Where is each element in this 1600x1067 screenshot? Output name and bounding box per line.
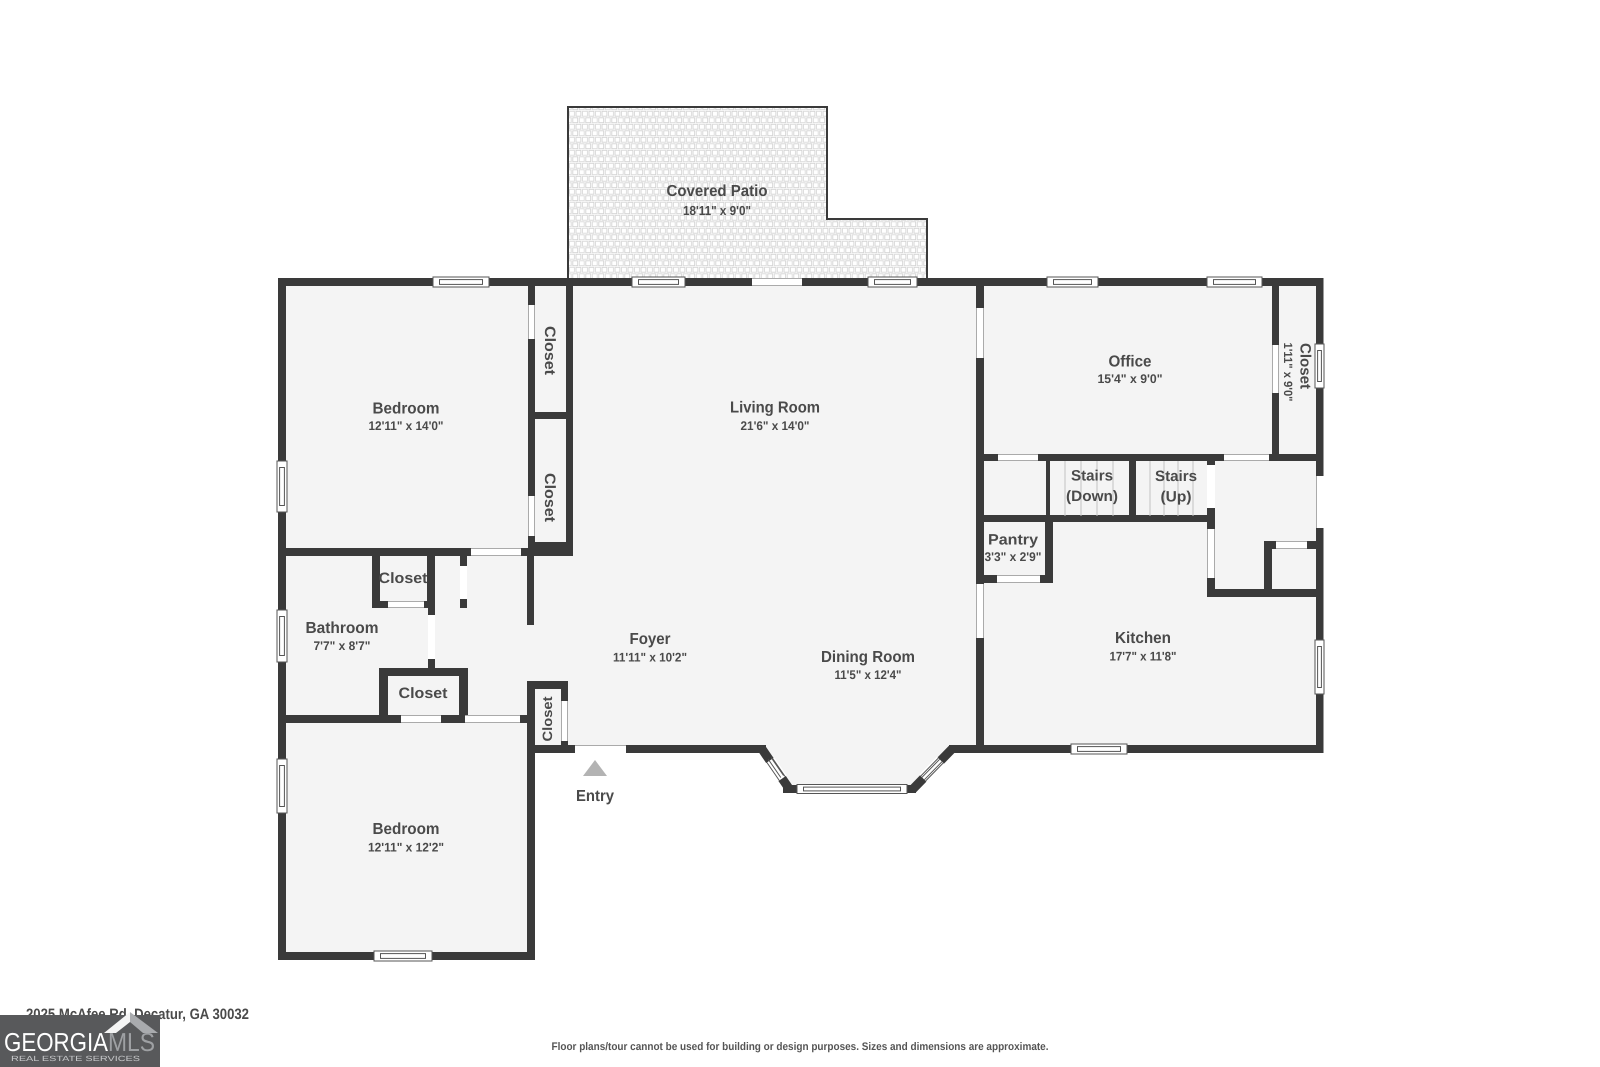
svg-text:Foyer: Foyer	[630, 631, 671, 648]
svg-text:(Down): (Down)	[1066, 488, 1118, 505]
svg-text:3'3" x 2'9": 3'3" x 2'9"	[985, 550, 1042, 564]
svg-text:15'4" x 9'0": 15'4" x 9'0"	[1098, 372, 1163, 386]
svg-text:Covered Patio: Covered Patio	[667, 183, 768, 200]
svg-text:11'5" x 12'4": 11'5" x 12'4"	[835, 668, 902, 682]
svg-text:Pantry: Pantry	[988, 532, 1039, 549]
svg-text:Closet: Closet	[541, 326, 558, 375]
svg-text:Entry: Entry	[576, 788, 614, 805]
svg-text:12'11" x 14'0": 12'11" x 14'0"	[369, 419, 444, 433]
svg-text:Office: Office	[1109, 354, 1152, 371]
svg-text:Stairs: Stairs	[1071, 468, 1113, 485]
svg-text:Living Room: Living Room	[730, 400, 820, 417]
svg-text:11'11" x 10'2": 11'11" x 10'2"	[613, 651, 687, 665]
svg-text:1'11" x 9'0": 1'11" x 9'0"	[1281, 343, 1295, 402]
svg-text:GEORGIA: GEORGIA	[4, 1027, 109, 1057]
svg-text:(Up): (Up)	[1161, 489, 1192, 506]
svg-text:Bathroom: Bathroom	[306, 620, 379, 637]
svg-text:Bedroom: Bedroom	[373, 821, 440, 838]
svg-text:Dining Room: Dining Room	[821, 649, 915, 666]
svg-text:Kitchen: Kitchen	[1115, 630, 1171, 647]
svg-text:18'11" x 9'0": 18'11" x 9'0"	[683, 203, 751, 218]
svg-text:7'7" x 8'7": 7'7" x 8'7"	[314, 639, 371, 653]
svg-text:Stairs: Stairs	[1155, 468, 1197, 485]
svg-text:12'11" x 12'2": 12'11" x 12'2"	[368, 841, 444, 855]
svg-text:17'7" x 11'8": 17'7" x 11'8"	[1110, 650, 1177, 664]
svg-text:Floor plans/tour cannot be use: Floor plans/tour cannot be used for buil…	[552, 1041, 1049, 1053]
svg-text:REAL ESTATE SERVICES: REAL ESTATE SERVICES	[11, 1054, 140, 1063]
svg-text:21'6" x 14'0": 21'6" x 14'0"	[741, 419, 810, 433]
svg-text:Closet: Closet	[540, 696, 555, 742]
svg-text:Closet: Closet	[541, 473, 558, 522]
svg-text:Closet: Closet	[1297, 343, 1314, 389]
svg-text:Bedroom: Bedroom	[373, 401, 440, 418]
svg-text:Closet: Closet	[379, 570, 428, 587]
svg-text:Closet: Closet	[399, 685, 448, 702]
